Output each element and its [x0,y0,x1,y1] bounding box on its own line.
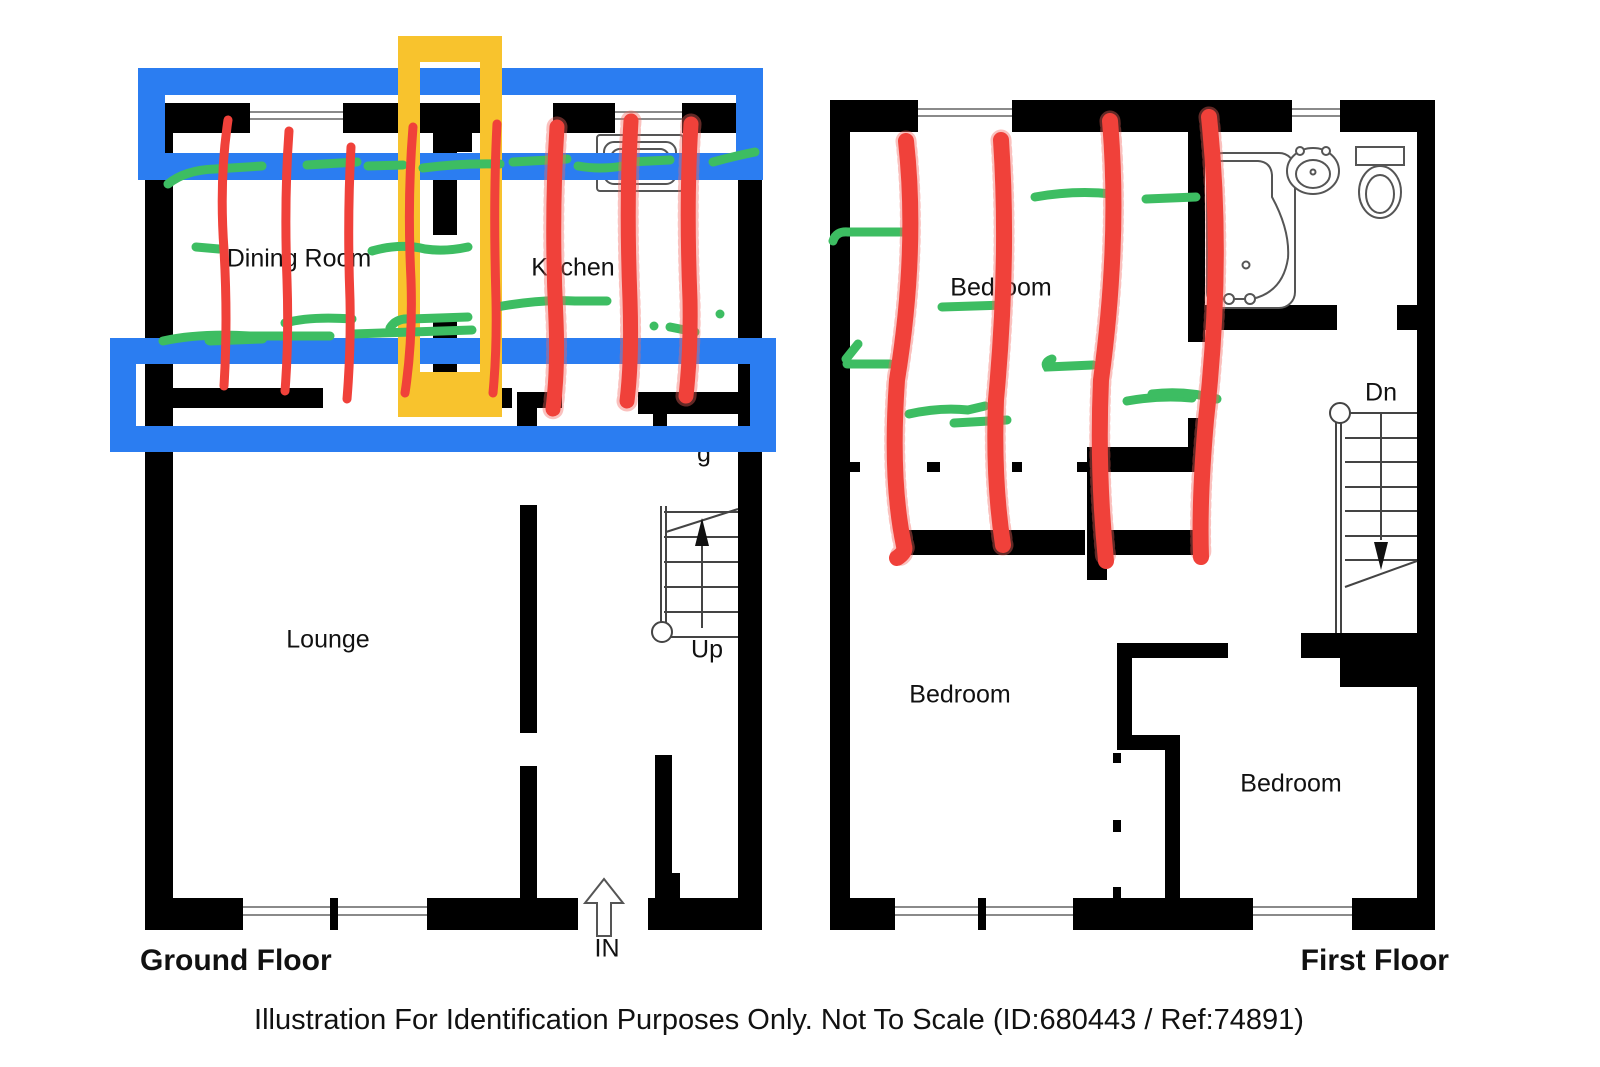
floorplan-illustration: Dining Room Kitchen Lounge Up IN g Bedro… [0,0,1600,1067]
red-scribbles [222,117,1216,561]
scribble-annotations [0,0,1600,1067]
